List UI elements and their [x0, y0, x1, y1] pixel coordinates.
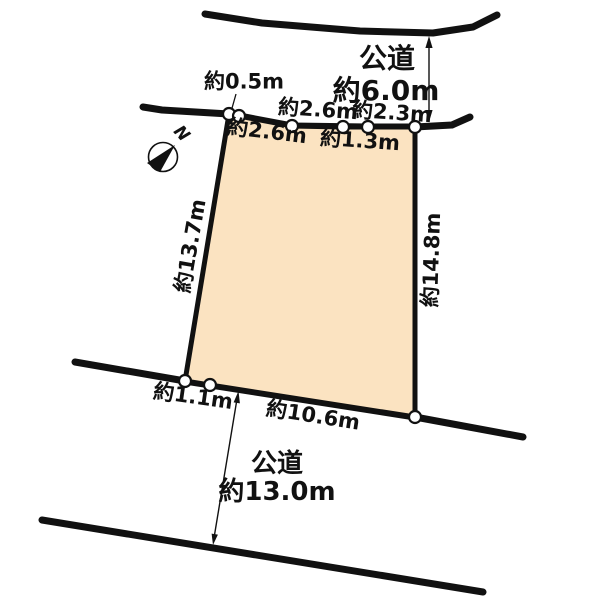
top-edge-seg-0-5-label: 約0.5m [204, 72, 284, 93]
land-plot-diagram: 公道 約6.0m 約0.5m 約2.6m 約2.6m 約1.3m 約2.3m 約… [0, 0, 600, 600]
top-road-upper-edge [205, 14, 497, 33]
top-edge-seg-2-6b-label: 約2.6m [277, 97, 358, 124]
plot-polygon [185, 114, 415, 417]
bottom-road-width-arrow [212, 391, 240, 545]
bottom-road-name-label: 公道 [251, 451, 303, 477]
seg-0-5-leader-line [232, 94, 237, 110]
vertex-marker [409, 411, 421, 423]
top-edge-seg-2-3-label: 約2.3m [351, 100, 432, 127]
north-compass-icon [147, 143, 178, 173]
bottom-road-lower-edge [42, 520, 483, 592]
top-edge-seg-1-3-label: 約1.3m [319, 128, 400, 155]
right-edge-length-label: 約14.8m [420, 212, 444, 307]
top-road-name-label: 公道 [359, 45, 415, 73]
diagram-canvas [0, 0, 600, 600]
bottom-road-width-label: 約13.0m [218, 479, 335, 505]
